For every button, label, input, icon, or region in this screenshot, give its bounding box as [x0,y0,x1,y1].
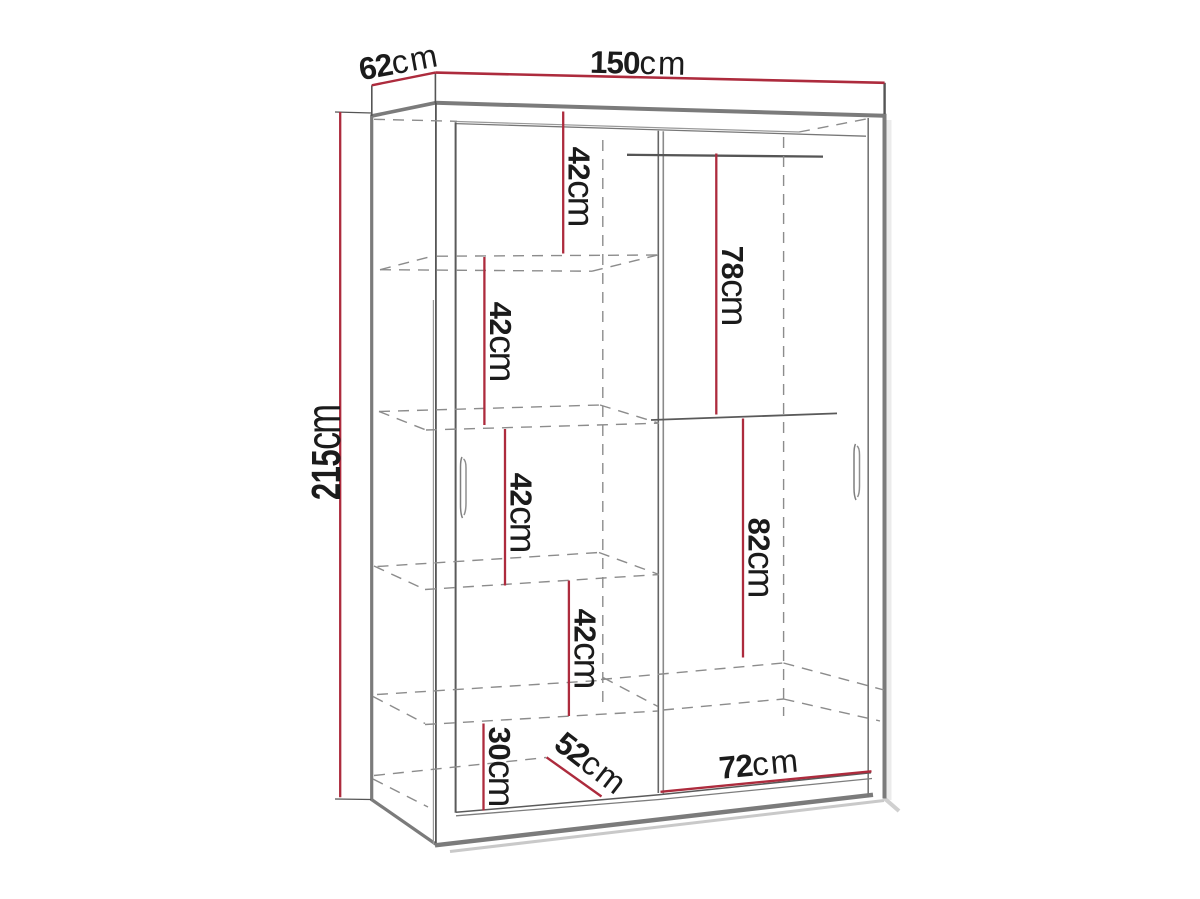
svg-text:72cm: 72cm [717,741,801,786]
svg-text:42cm: 42cm [503,473,544,552]
svg-text:78cm: 78cm [714,246,755,325]
svg-text:30cm: 30cm [481,727,522,806]
svg-text:82cm: 82cm [741,518,782,597]
svg-text:215cm: 215cm [297,406,350,500]
svg-text:150cm: 150cm [590,43,688,82]
svg-text:42cm: 42cm [566,609,607,688]
svg-text:42cm: 42cm [561,147,602,226]
svg-text:42cm: 42cm [482,302,523,381]
